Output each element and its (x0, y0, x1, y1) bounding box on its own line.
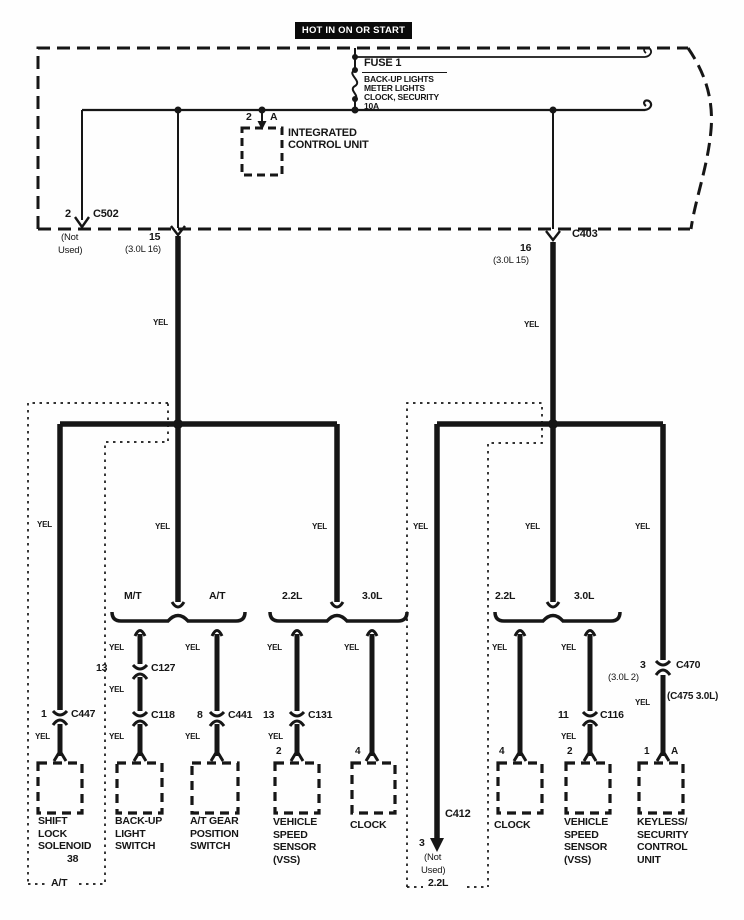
c403-name: C403 (572, 229, 598, 240)
wire-color-tag: YEL (153, 319, 168, 327)
icu-box (242, 128, 282, 175)
wiring-diagram: HOT IN ON OR START FUSE 1 BACK-UP LIGHTS… (0, 0, 744, 920)
backup-light-switch-label: SWITCH (115, 841, 155, 852)
wire-color-tag: YEL (344, 644, 359, 652)
wire-color-tag: YEL (492, 644, 507, 652)
c403-pin: 16 (520, 243, 531, 254)
at-variant-label: A/T (51, 878, 67, 889)
wire-color-tag: YEL (35, 733, 50, 741)
l22-variant-label: 2.2L (428, 878, 448, 889)
vss-left-label: SENSOR (273, 842, 316, 853)
vss-right-label: SPEED (564, 830, 599, 841)
group-label-30-right: 3.0L (574, 591, 594, 602)
wire-color-tag: YEL (185, 733, 200, 741)
wire-color-tag: YEL (561, 644, 576, 652)
clock-right-box (498, 763, 542, 813)
split-brackets (112, 612, 620, 621)
continuation-s-hook (644, 100, 651, 110)
at-gear-position-switch-label: SWITCH (190, 841, 230, 852)
vss-left-label: VEHICLE (273, 817, 317, 828)
wire-color-tag: YEL (109, 644, 124, 652)
shift-lock-solenoid-label: SOLENOID (38, 841, 91, 852)
connector-c470-icon (656, 660, 670, 675)
c118-name: C118 (151, 710, 175, 721)
vss-right-label: SENSOR (564, 842, 607, 853)
wire-color-tag: YEL (312, 523, 327, 531)
bracket-22-30-left (270, 612, 407, 621)
clock-right-pin: 4 (499, 747, 504, 757)
at-gear-position-switch-label: POSITION (190, 829, 239, 840)
c447-pin: 1 (41, 709, 47, 720)
keyless-terminal: A (671, 747, 678, 757)
c470-alt: (3.0L 2) (608, 673, 639, 683)
vss-right-label: (VSS) (564, 855, 591, 866)
wire-color-tag: YEL (524, 321, 539, 329)
wire-hook (547, 602, 559, 607)
vss-left-label: (VSS) (273, 855, 300, 866)
icu-name-2: CONTROL UNIT (288, 140, 369, 151)
clock-left-pin: 4 (355, 747, 360, 757)
icu-terminal: A (270, 112, 277, 123)
wire-color-tag: YEL (525, 523, 540, 531)
shift-lock-solenoid-label: LOCK (38, 829, 67, 840)
vss-right-pin: 2 (567, 747, 572, 757)
wire-hook (331, 602, 343, 607)
trunk-right (546, 110, 560, 424)
group-label-mt: M/T (124, 591, 141, 602)
c412-name: C412 (445, 809, 471, 820)
c441-pin: 8 (197, 710, 203, 721)
c131-pin: 13 (263, 710, 274, 721)
clock-right-label: CLOCK (494, 820, 530, 831)
c412-pin: 3 (419, 838, 425, 849)
wire-color-tag: YEL (37, 521, 52, 529)
c412-note-2: Used) (421, 866, 445, 876)
keyless-security-unit-label: CONTROL (637, 842, 688, 853)
group-label-22-left: 2.2L (282, 591, 302, 602)
vss-left-box (275, 763, 319, 813)
connector-c116-icon (583, 711, 597, 726)
wire-color-tag: YEL (109, 686, 124, 694)
junction15-pin: 15 (149, 232, 160, 243)
wire-color-tag: YEL (267, 644, 282, 652)
wire-color-tag: YEL (635, 699, 650, 707)
connector-glyphs (53, 660, 670, 726)
connector-c131-icon (290, 711, 304, 726)
icu-name-1: INTEGRATED (288, 128, 357, 139)
group-label-22-right: 2.2L (495, 591, 515, 602)
c502-name: C502 (93, 209, 119, 220)
keyless-pin: 1 (644, 747, 649, 757)
bracket-mt-at (112, 612, 245, 621)
connector-arrow (546, 231, 560, 240)
c502-pin: 2 (65, 209, 71, 220)
wire-color-tag: YEL (185, 644, 200, 652)
shift-lock-solenoid-box (38, 763, 82, 813)
c412-note-1: (Not (424, 853, 441, 863)
branch-c502 (75, 110, 89, 227)
vss-left-label: SPEED (273, 830, 308, 841)
group-label-at: A/T (209, 591, 225, 602)
group-label-30-left: 3.0L (362, 591, 382, 602)
vss-right-box (566, 763, 610, 813)
wire-color-tag: YEL (561, 733, 576, 741)
component-terminals (54, 751, 669, 761)
connector-c447-icon (53, 710, 67, 725)
wire-color-tag: YEL (268, 733, 283, 741)
c131-name: C131 (308, 710, 332, 721)
shift-lock-solenoid-label: SHIFT (38, 816, 67, 827)
trunk-left (171, 110, 185, 424)
c470-name: C470 (676, 660, 700, 671)
connector-c118-icon (133, 711, 147, 726)
continuation-wavy-edge (688, 48, 711, 229)
wire-color-tag: YEL (109, 733, 124, 741)
wire-color-tag: YEL (635, 523, 650, 531)
icu-pin: 2 (246, 112, 252, 123)
keyless-security-unit-label: UNIT (637, 855, 661, 866)
wire-color-tag: YEL (413, 523, 428, 531)
bracket-22-30-right (495, 612, 620, 621)
connector-c127-icon (133, 664, 147, 679)
vss-left-pin: 2 (276, 747, 281, 757)
c441-name: C441 (228, 710, 252, 721)
junction-right (430, 419, 663, 852)
c127-pin: 13 (96, 663, 107, 674)
c116-name: C116 (600, 710, 624, 721)
component-boxes (38, 763, 683, 813)
at-gear-position-switch-label: A/T GEAR (190, 816, 239, 827)
clock-left-box (352, 763, 395, 813)
fuse-name: FUSE 1 (364, 58, 401, 69)
keyless-security-unit-label: SECURITY (637, 830, 689, 841)
c447-name: C447 (71, 709, 95, 720)
shift-lock-solenoid-number: 38 (67, 854, 78, 865)
backup-light-switch-label: BACK-UP (115, 816, 162, 827)
keyless-security-unit-label: KEYLESS/ (637, 817, 687, 828)
c502-note-1: (Not (61, 233, 78, 243)
c502-note-2: Used) (58, 246, 82, 256)
backup-light-switch-label: LIGHT (115, 829, 146, 840)
diagram-linework (0, 0, 744, 920)
c116-pin: 11 (558, 710, 569, 721)
hot-in-on-or-start-banner: HOT IN ON OR START (295, 22, 412, 39)
c470-pin: 3 (640, 660, 646, 671)
connector-c441-icon (210, 711, 224, 726)
backup-light-switch-box (117, 763, 162, 813)
c403-alt: (3.0L 15) (493, 256, 529, 266)
at-gear-position-switch-box (192, 763, 238, 813)
vss-right-label: VEHICLE (564, 817, 608, 828)
c127-name: C127 (151, 663, 175, 674)
junction15-alt: (3.0L 16) (125, 245, 161, 255)
fuse-rating: 10A (364, 102, 379, 111)
wire-end-arrow (430, 838, 444, 852)
wire-hook (172, 602, 184, 607)
clock-left-label: CLOCK (350, 820, 386, 831)
c470-alt2: (C475 3.0L) (667, 692, 718, 702)
wire-color-tag: YEL (155, 523, 170, 531)
keyless-security-unit-box (639, 763, 683, 813)
